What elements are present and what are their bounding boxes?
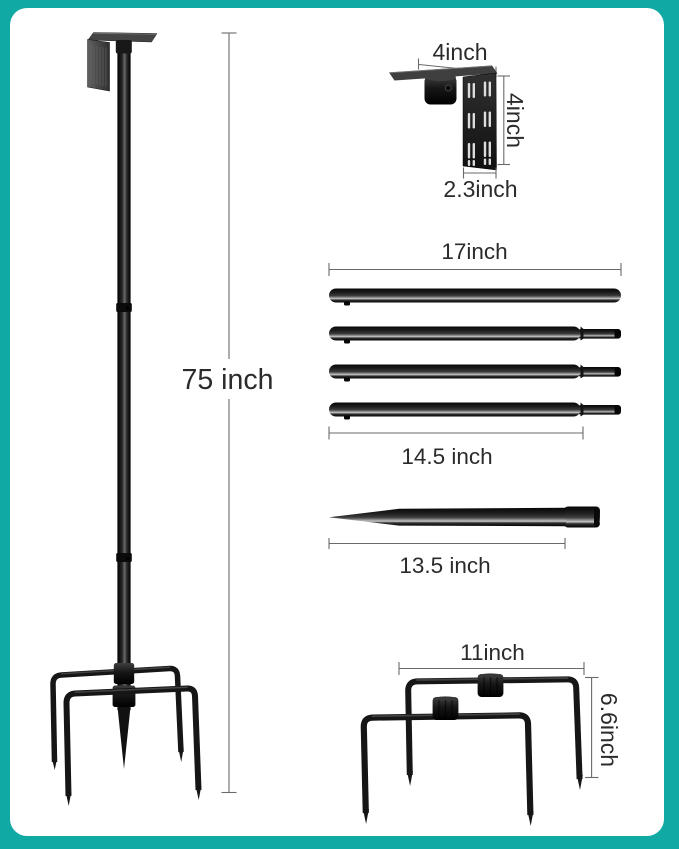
spike-length-label: 13.5 inch — [399, 553, 490, 578]
base-collar-back — [114, 663, 134, 684]
bracket-depth-label: 2.3inch — [443, 176, 517, 202]
product-dimension-diagram: 75 inch 4inch 4inch — [0, 0, 679, 849]
tube-end-ring — [615, 405, 622, 415]
bracket-width-label: 4inch — [433, 39, 488, 65]
base-width-label: 11inch — [460, 640, 525, 665]
base-height-label: 6.6inch — [596, 693, 622, 767]
tube-segment-4 — [329, 403, 581, 417]
spring-pin — [126, 307, 129, 310]
spring-pin — [126, 557, 129, 560]
white-panel — [10, 8, 664, 836]
socket-top — [425, 74, 456, 81]
tube-segment-3 — [329, 365, 581, 379]
tube-end-ring — [615, 367, 622, 377]
tube-pin — [344, 302, 350, 306]
tube-pin — [344, 378, 350, 382]
tube-full-length-label: 17inch — [441, 239, 507, 264]
pole-joint — [116, 553, 132, 562]
screw-hole — [445, 85, 451, 91]
bracket-height-label: 4inch — [502, 93, 528, 148]
tube-pin — [344, 340, 350, 344]
spike-end-ring — [594, 508, 600, 527]
diagram-svg: 75 inch 4inch 4inch — [0, 0, 679, 849]
tube-pin — [344, 416, 350, 420]
tube-segment-1 — [329, 289, 621, 303]
pole-joint — [116, 303, 132, 312]
bracket-socket — [116, 40, 132, 54]
tube-segment-2 — [329, 327, 581, 341]
tube-end-ring — [615, 329, 622, 339]
tube-body-length-label: 14.5 inch — [401, 444, 492, 469]
pole-shaft — [117, 42, 130, 710]
pole-height-label: 75 inch — [182, 364, 274, 396]
